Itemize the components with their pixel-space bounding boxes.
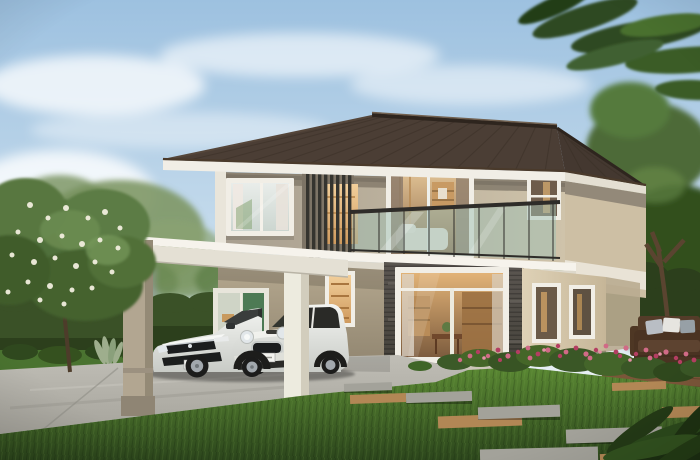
house-exterior-render bbox=[0, 0, 700, 460]
vignette bbox=[0, 0, 700, 460]
